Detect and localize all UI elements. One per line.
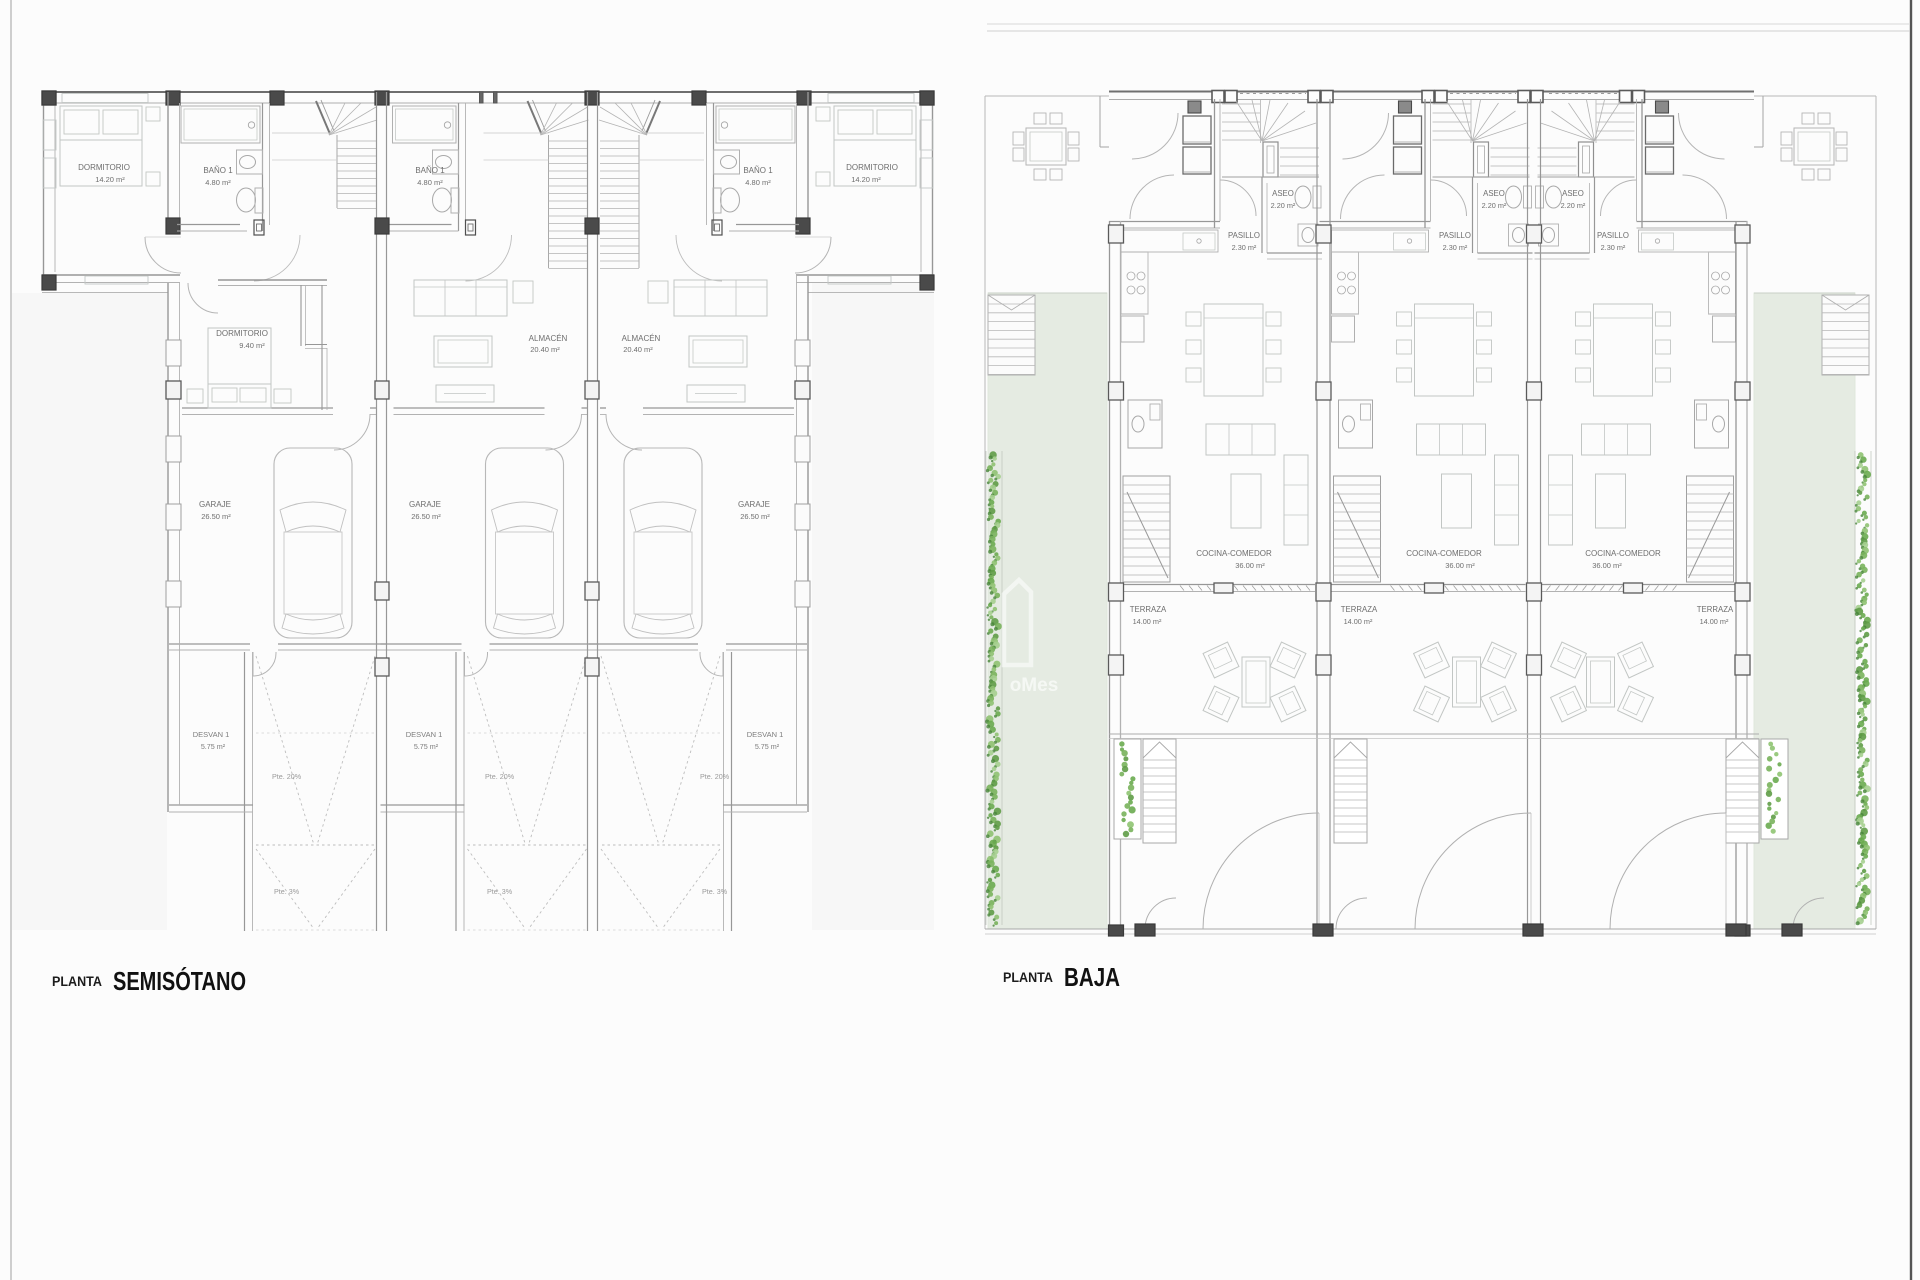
- svg-text:TERRAZA: TERRAZA: [1341, 605, 1378, 614]
- svg-text:Pte. 20%: Pte. 20%: [272, 772, 302, 781]
- svg-text:GARAJE: GARAJE: [738, 500, 770, 509]
- svg-text:36.00 m²: 36.00 m²: [1235, 561, 1265, 570]
- svg-text:Pte. 20%: Pte. 20%: [485, 772, 515, 781]
- svg-text:PASILLO: PASILLO: [1597, 231, 1629, 240]
- svg-text:14.00 m²: 14.00 m²: [1133, 617, 1162, 626]
- svg-text:20.40 m²: 20.40 m²: [623, 345, 653, 354]
- svg-text:PLANTA: PLANTA: [1003, 970, 1053, 985]
- svg-text:ALMACÉN: ALMACÉN: [529, 334, 568, 343]
- svg-text:BAÑO 1: BAÑO 1: [203, 166, 233, 175]
- svg-text:GARAJE: GARAJE: [199, 500, 231, 509]
- svg-text:TERRAZA: TERRAZA: [1130, 605, 1167, 614]
- svg-text:DORMITORIO: DORMITORIO: [78, 163, 130, 172]
- svg-text:ASEO: ASEO: [1562, 189, 1584, 198]
- svg-text:PASILLO: PASILLO: [1439, 231, 1471, 240]
- svg-text:DORMITORIO: DORMITORIO: [216, 329, 268, 338]
- svg-text:2.20 m²: 2.20 m²: [1482, 201, 1507, 210]
- svg-text:GARAJE: GARAJE: [409, 500, 441, 509]
- svg-text:4.80 m²: 4.80 m²: [205, 178, 231, 187]
- svg-text:SEMISÓTANO: SEMISÓTANO: [113, 966, 246, 996]
- svg-text:ALMACÉN: ALMACÉN: [622, 334, 661, 343]
- svg-text:DESVAN 1: DESVAN 1: [747, 730, 784, 739]
- svg-text:5.75 m²: 5.75 m²: [414, 742, 439, 751]
- svg-text:BAJA: BAJA: [1064, 962, 1120, 992]
- svg-text:4.80 m²: 4.80 m²: [417, 178, 443, 187]
- svg-text:2.30 m²: 2.30 m²: [1232, 243, 1257, 252]
- svg-text:ASEO: ASEO: [1483, 189, 1505, 198]
- svg-text:DESVAN 1: DESVAN 1: [406, 730, 443, 739]
- svg-text:2.20 m²: 2.20 m²: [1561, 201, 1586, 210]
- svg-text:26.50 m²: 26.50 m²: [411, 512, 441, 521]
- svg-text:26.50 m²: 26.50 m²: [201, 512, 231, 521]
- svg-text:COCINA-COMEDOR: COCINA-COMEDOR: [1406, 549, 1482, 558]
- svg-text:2.30 m²: 2.30 m²: [1601, 243, 1626, 252]
- svg-text:Pte. 3%: Pte. 3%: [487, 887, 513, 896]
- svg-text:Pte. 3%: Pte. 3%: [702, 887, 728, 896]
- svg-text:9.40 m²: 9.40 m²: [239, 341, 265, 350]
- svg-text:BAÑO 1: BAÑO 1: [415, 166, 445, 175]
- svg-text:oMes: oMes: [1010, 675, 1059, 696]
- svg-text:5.75 m²: 5.75 m²: [201, 742, 226, 751]
- svg-text:14.00 m²: 14.00 m²: [1700, 617, 1729, 626]
- svg-text:4.80 m²: 4.80 m²: [745, 178, 771, 187]
- svg-text:Pte. 20%: Pte. 20%: [700, 772, 730, 781]
- svg-text:TERRAZA: TERRAZA: [1697, 605, 1734, 614]
- svg-text:DESVAN 1: DESVAN 1: [193, 730, 230, 739]
- svg-text:ASEO: ASEO: [1272, 189, 1294, 198]
- svg-text:14.20 m²: 14.20 m²: [95, 175, 125, 184]
- svg-text:Pte. 3%: Pte. 3%: [274, 887, 300, 896]
- svg-text:5.75 m²: 5.75 m²: [755, 742, 780, 751]
- svg-text:2.30 m²: 2.30 m²: [1443, 243, 1468, 252]
- svg-text:36.00 m²: 36.00 m²: [1445, 561, 1475, 570]
- svg-text:COCINA-COMEDOR: COCINA-COMEDOR: [1585, 549, 1661, 558]
- svg-text:20.40 m²: 20.40 m²: [530, 345, 560, 354]
- svg-text:DORMITORIO: DORMITORIO: [846, 163, 898, 172]
- svg-text:36.00 m²: 36.00 m²: [1592, 561, 1622, 570]
- svg-text:BAÑO 1: BAÑO 1: [743, 166, 773, 175]
- svg-text:PLANTA: PLANTA: [52, 974, 102, 989]
- svg-text:2.20 m²: 2.20 m²: [1271, 201, 1296, 210]
- svg-text:COCINA-COMEDOR: COCINA-COMEDOR: [1196, 549, 1272, 558]
- svg-text:14.20 m²: 14.20 m²: [851, 175, 881, 184]
- svg-text:PASILLO: PASILLO: [1228, 231, 1260, 240]
- svg-text:14.00 m²: 14.00 m²: [1344, 617, 1373, 626]
- svg-text:26.50 m²: 26.50 m²: [740, 512, 770, 521]
